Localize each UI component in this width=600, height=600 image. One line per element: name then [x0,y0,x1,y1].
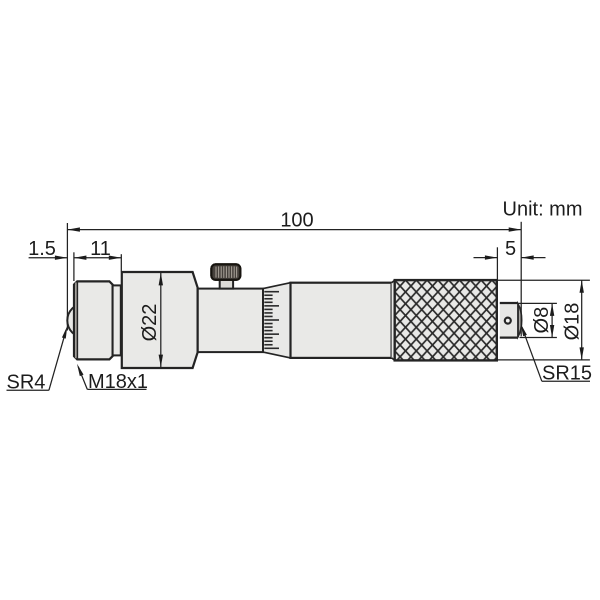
svg-text:11: 11 [90,238,111,260]
svg-text:1.5: 1.5 [28,238,56,260]
svg-text:Ø18: Ø18 [562,303,584,341]
svg-text:Unit: mm: Unit: mm [503,199,583,221]
svg-text:Ø8: Ø8 [531,307,553,334]
svg-text:Ø22: Ø22 [139,304,161,342]
svg-text:100: 100 [280,210,313,232]
svg-text:5: 5 [505,238,516,260]
